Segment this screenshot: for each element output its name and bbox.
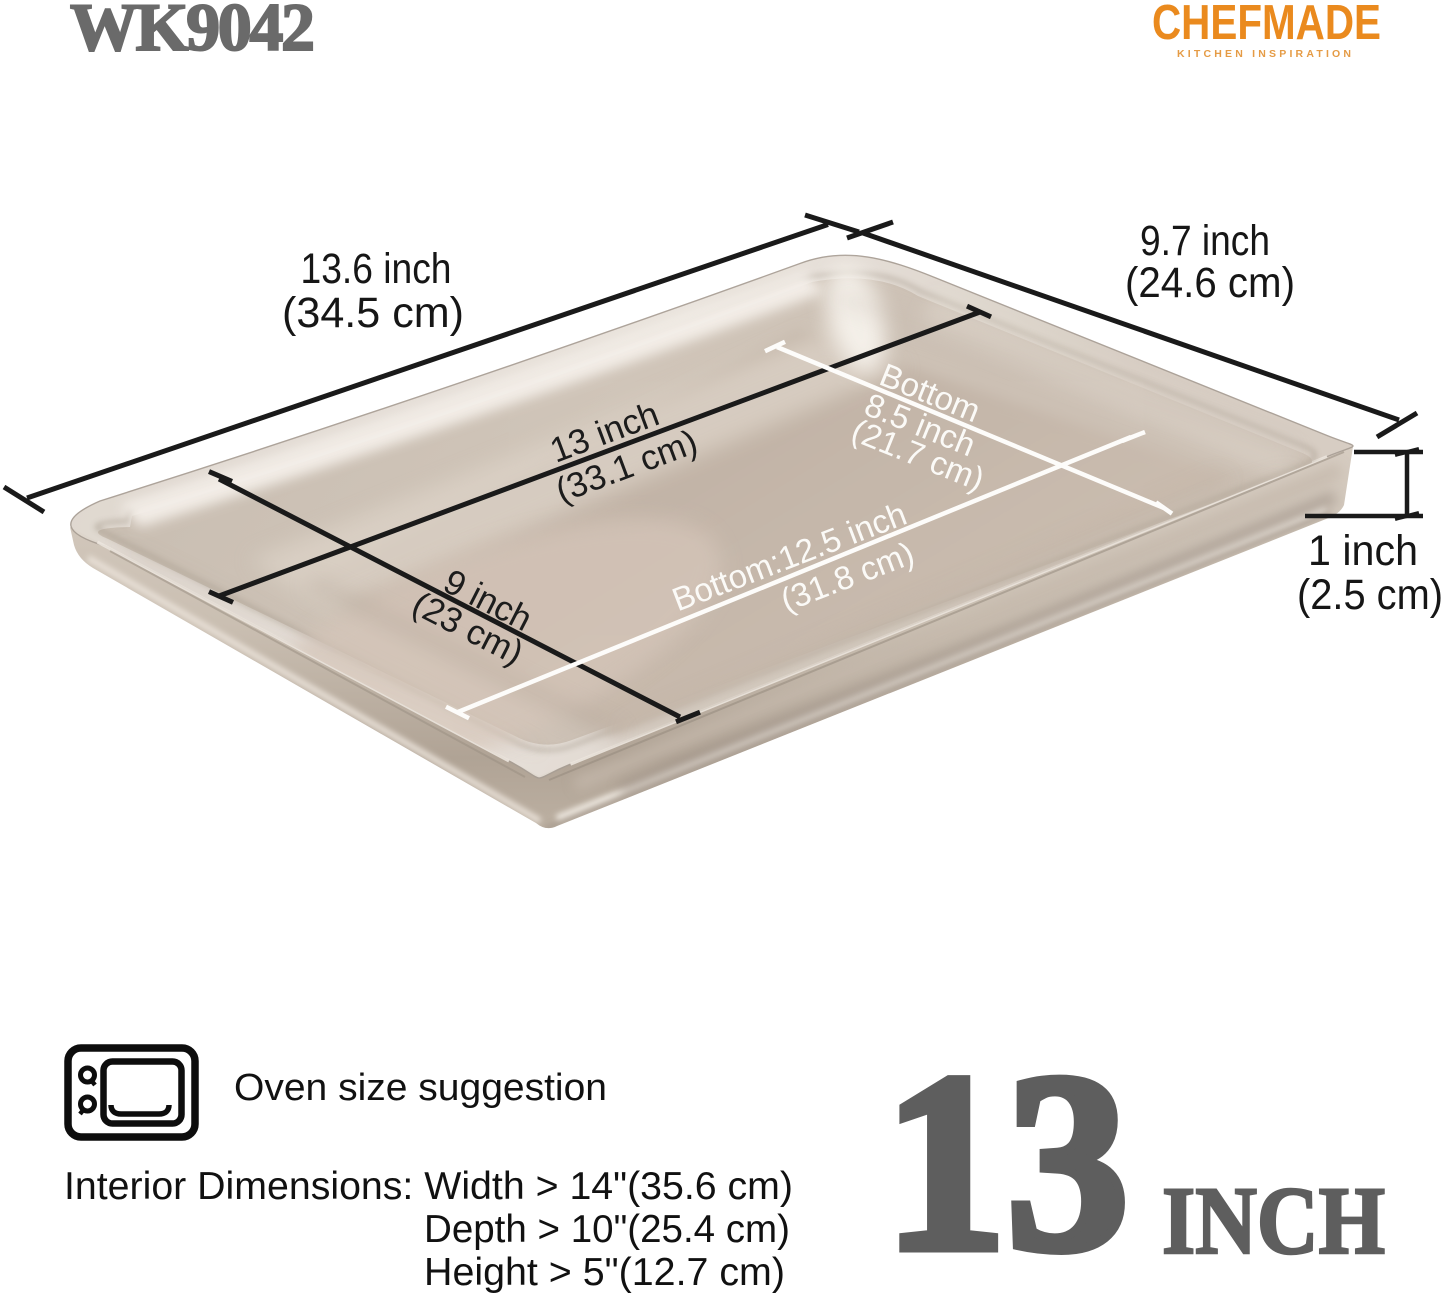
svg-text:(2.5 cm): (2.5 cm) [1297, 571, 1443, 619]
svg-text:Depth > 10"(25.4 cm): Depth > 10"(25.4 cm) [424, 1208, 790, 1251]
svg-text:INCH: INCH [1162, 1167, 1385, 1274]
svg-text:Oven size suggestion: Oven size suggestion [234, 1067, 607, 1109]
svg-text:WK9042: WK9042 [70, 0, 315, 65]
svg-text:(24.6 cm): (24.6 cm) [1125, 259, 1295, 307]
svg-text:1 inch: 1 inch [1308, 527, 1418, 575]
svg-text:CHEFMADE: CHEFMADE [1152, 0, 1381, 50]
svg-text:(34.5 cm): (34.5 cm) [282, 289, 464, 337]
svg-text:13: 13 [884, 1022, 1129, 1295]
svg-text:9.7 inch: 9.7 inch [1140, 217, 1270, 265]
svg-text:KITCHEN INSPIRATION: KITCHEN INSPIRATION [1177, 48, 1355, 60]
svg-text:Height > 5"(12.7 cm): Height > 5"(12.7 cm) [424, 1251, 785, 1294]
svg-text:13.6 inch: 13.6 inch [301, 245, 452, 293]
svg-text:Interior Dimensions: Width > 1: Interior Dimensions: Width > 14"(35.6 cm… [64, 1165, 793, 1208]
